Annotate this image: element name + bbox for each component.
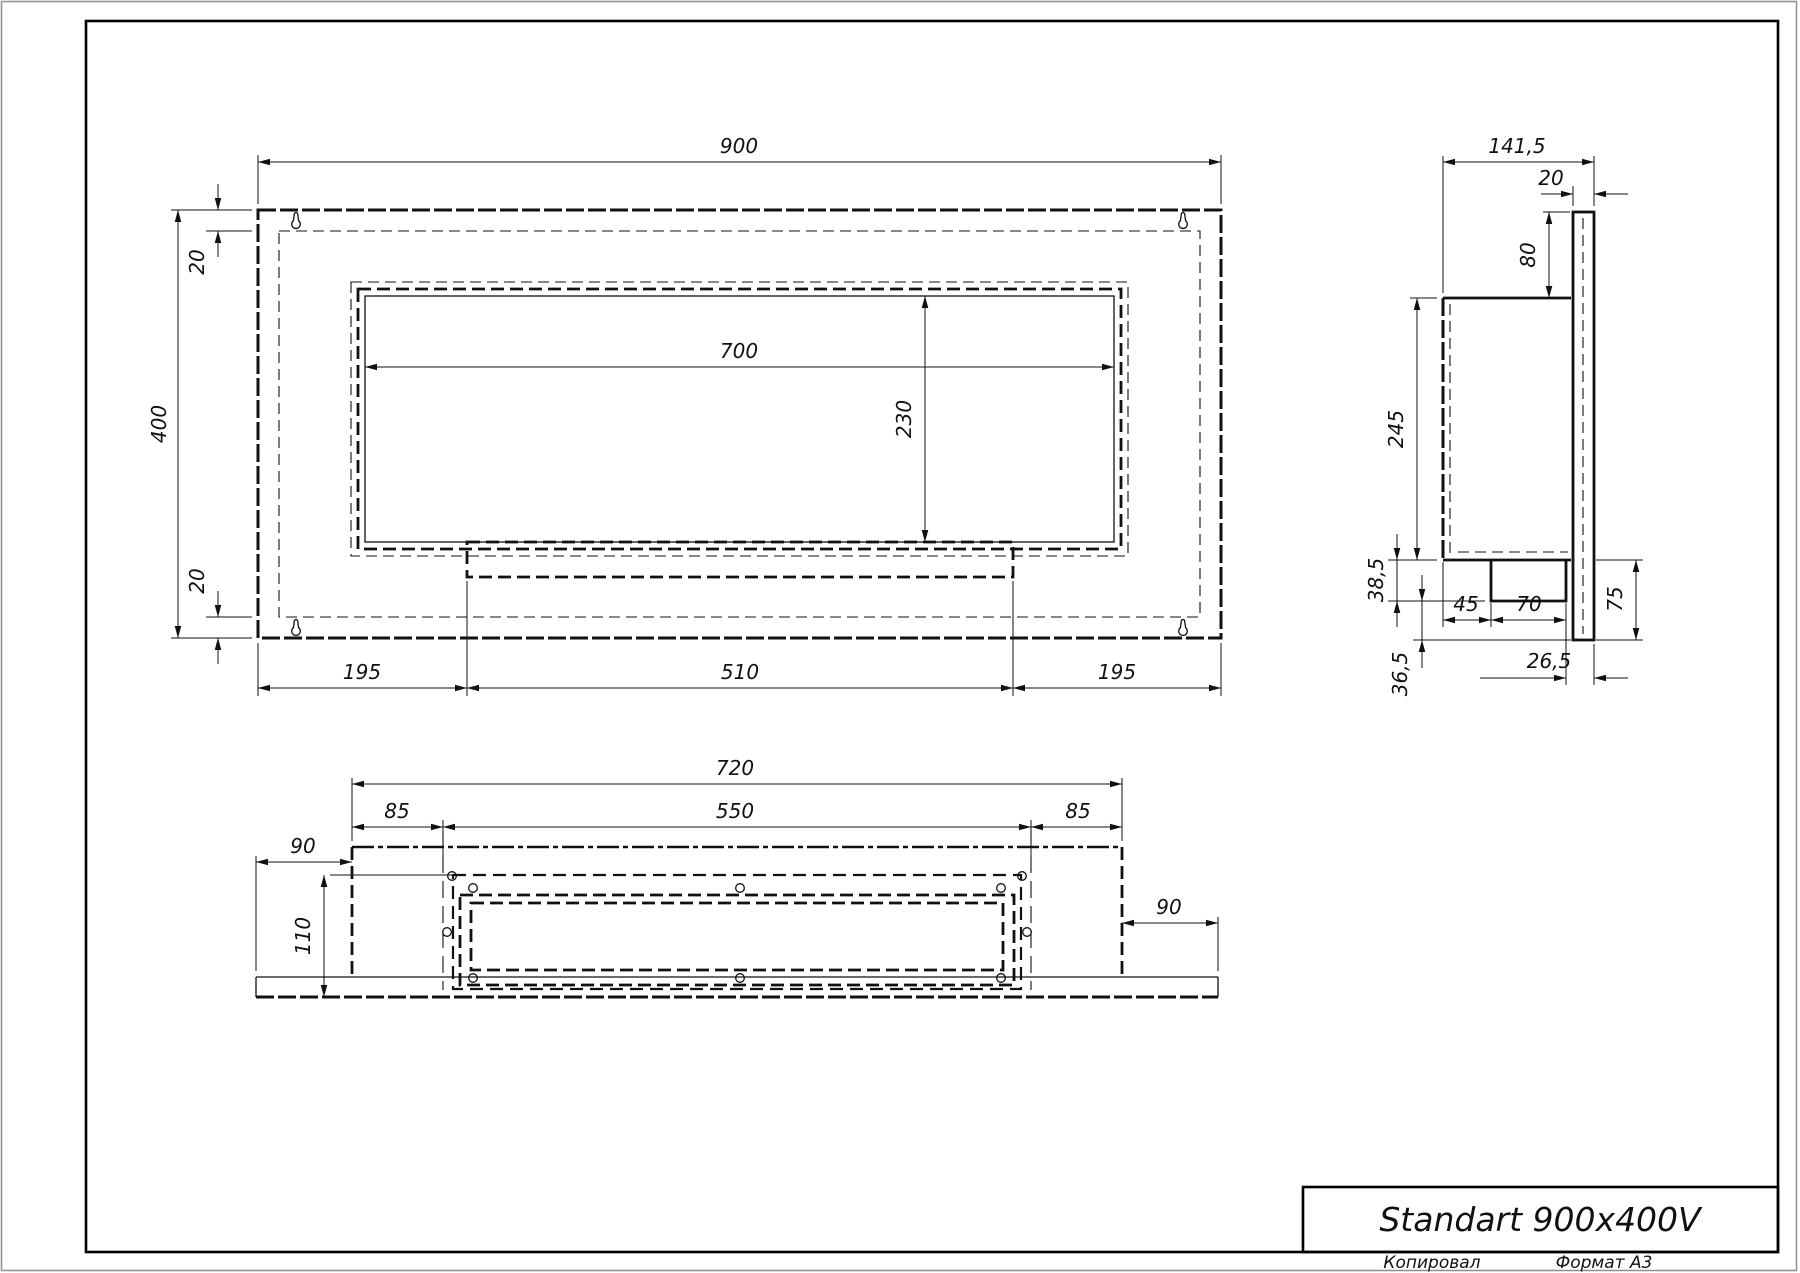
bottom-mount-holes (443, 872, 1032, 983)
dim-side-depth-label: 141,5 (1488, 134, 1545, 158)
dim-front-width-label: 900 (720, 134, 758, 158)
dim-bottom-right-inset-label: 85 (1065, 799, 1090, 823)
dim-bottom-left-inset-label: 85 (384, 799, 409, 823)
dim-side-lower-height-label: 75 (1603, 586, 1627, 611)
dim-bottom-depth-label: 110 (291, 917, 315, 955)
dim-bottom-right-overhang-label: 90 (1156, 895, 1181, 919)
dim-front-width: 900 (258, 134, 1221, 204)
dim-burner-front-offset-label: 45 (1453, 592, 1478, 616)
dim-front-bottom-inset-label: 20 (185, 568, 209, 593)
dim-burner-width-label: 70 (1516, 592, 1541, 616)
dim-side-body-height-label: 245 (1384, 410, 1408, 448)
front-opening-mid-hidden (358, 289, 1121, 549)
copied-label: Копировал (1383, 1253, 1480, 1273)
drawing-sheet: 900 400 20 20 700 (0, 0, 1800, 1273)
dim-opening-height: 230 (892, 296, 925, 542)
dim-bottom-chain: 85 550 85 (352, 799, 1122, 866)
dim-opening-width-label: 700 (720, 339, 758, 363)
keyhole-slot-bottom-right (1179, 619, 1188, 635)
keyhole-slot-top-right (1179, 212, 1188, 228)
dim-side-depth: 141,5 (1443, 134, 1594, 293)
dim-burner-position: 45 70 (1443, 562, 1566, 627)
dim-burner-bottom-offset-label: 36,5 (1388, 652, 1412, 697)
dim-side-body-height: 245 (1384, 298, 1437, 560)
title-block: Standart 900x400V Копировал Формат А3 (1303, 1187, 1778, 1273)
bottom-mount-mid-hidden (460, 895, 1014, 985)
bottom-mount-outer-hidden (453, 875, 1021, 989)
dim-opening-width: 700 (365, 339, 1114, 367)
dim-front-top-inset: 20 (185, 184, 252, 275)
front-opening (365, 296, 1114, 542)
dim-wall-thickness: 20 (1538, 166, 1628, 206)
dim-opening-height-label: 230 (892, 400, 916, 438)
dim-side-top-offset: 80 (1516, 212, 1570, 298)
side-view: 141,5 20 80 245 38,5 (1364, 134, 1643, 696)
dim-bottom-body-width-label: 720 (716, 756, 754, 780)
dim-front-right-margin-label: 195 (1098, 660, 1136, 684)
dim-side-top-offset-label: 80 (1516, 242, 1540, 267)
dim-wall-thickness-label: 20 (1538, 166, 1563, 190)
keyhole-slot-top-left (292, 212, 301, 228)
paper-edge (2, 2, 1797, 1271)
dim-front-center-width-label: 510 (721, 660, 759, 684)
dim-front-left-margin-label: 195 (343, 660, 381, 684)
dim-bottom-right-overhang: 90 (1122, 895, 1218, 971)
front-panel-outline (258, 210, 1221, 638)
keyhole-slot-bottom-left (292, 619, 301, 635)
front-opening-outer-hidden (351, 282, 1128, 556)
dim-front-height-label: 400 (147, 405, 171, 443)
bottom-view: 720 85 550 85 90 90 110 (256, 756, 1218, 997)
dim-front-bottom-inset: 20 (185, 568, 252, 664)
dim-side-lower-height: 75 (1596, 560, 1643, 640)
format-label: Формат А3 (1556, 1253, 1653, 1273)
dim-burner-back-offset-label: 26,5 (1527, 649, 1572, 673)
dim-burner-height-label: 38,5 (1364, 558, 1388, 603)
dim-bottom-left-overhang-label: 90 (290, 834, 315, 858)
dim-front-top-inset-label: 20 (185, 249, 209, 274)
bottom-mount-inner-hidden (471, 903, 1003, 970)
dim-bottom-inner-width-label: 550 (716, 799, 754, 823)
front-bracket-hidden (467, 542, 1013, 577)
front-view: 900 400 20 20 700 (147, 134, 1221, 696)
drawing-title: Standart 900x400V (1379, 1200, 1703, 1239)
drawing-page: 900 400 20 20 700 (0, 0, 1800, 1273)
dim-bottom-depth: 110 (291, 875, 453, 997)
dim-burner-back-offset: 26,5 (1480, 605, 1628, 685)
